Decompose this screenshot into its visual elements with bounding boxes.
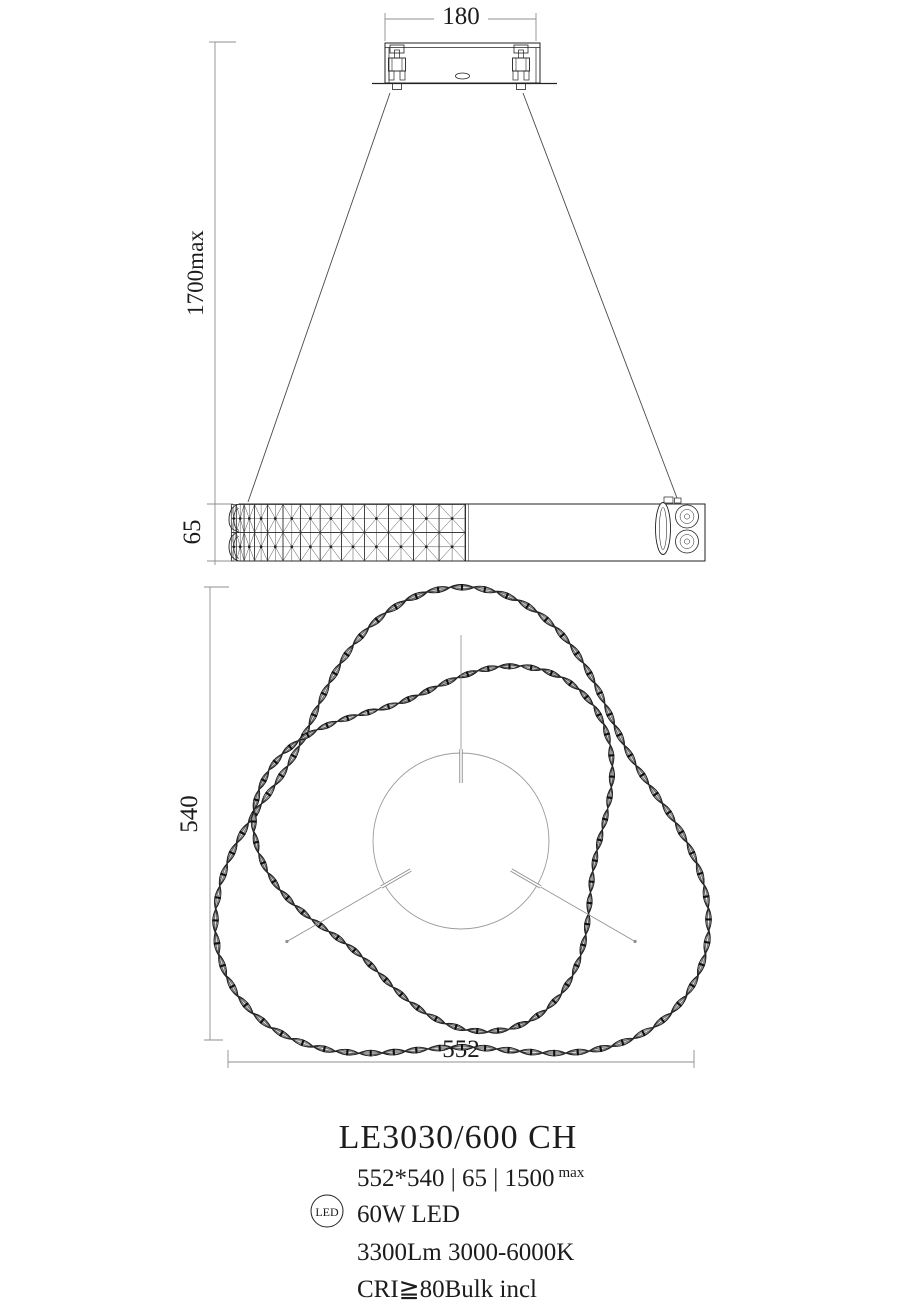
canopy (372, 43, 557, 90)
size-spec: 552*540 | 65 | 1500max (357, 1165, 585, 1192)
output-spec: 3300Lm 3000-6000K (357, 1239, 574, 1266)
crystal-pattern (231, 505, 465, 562)
suspension-wire-right (523, 93, 677, 498)
dim-suspension-height (209, 42, 236, 504)
canopy-center-hole (456, 73, 470, 79)
support-rods (285, 635, 636, 943)
ring-side-view (229, 497, 705, 561)
outer-crystal-ring (212, 584, 713, 1057)
wire-connector (664, 497, 673, 503)
dim-canopy-width-label: 180 (442, 3, 480, 30)
dim-band-height-label: 65 (179, 520, 206, 545)
band-right-bead-top (676, 505, 699, 528)
suspension-wire-left (248, 93, 390, 502)
technical-drawing-page: 180 1700max 65 540 552 (0, 0, 919, 1300)
dim-suspension-label: 1700max (183, 230, 208, 316)
band-right-lens (656, 503, 671, 555)
inner-crystal-ring (251, 663, 616, 1035)
dim-depth-label: 540 (176, 795, 203, 833)
band-right-bead-bottom (676, 530, 699, 553)
ring-top-view (212, 584, 713, 1057)
led-badge-label: LED (315, 1205, 339, 1219)
technical-drawing: 180 1700max 65 540 552 (0, 0, 919, 1300)
model-title: LE3030/600 CH (339, 1119, 578, 1156)
cri-spec: CRI≧80Bulk incl (357, 1276, 537, 1300)
spec-block: LE3030/600 CH 552*540 | 65 | 1500max LED… (311, 1119, 585, 1300)
dim-band-height (207, 500, 233, 565)
power-spec: 60W LED (357, 1201, 460, 1228)
